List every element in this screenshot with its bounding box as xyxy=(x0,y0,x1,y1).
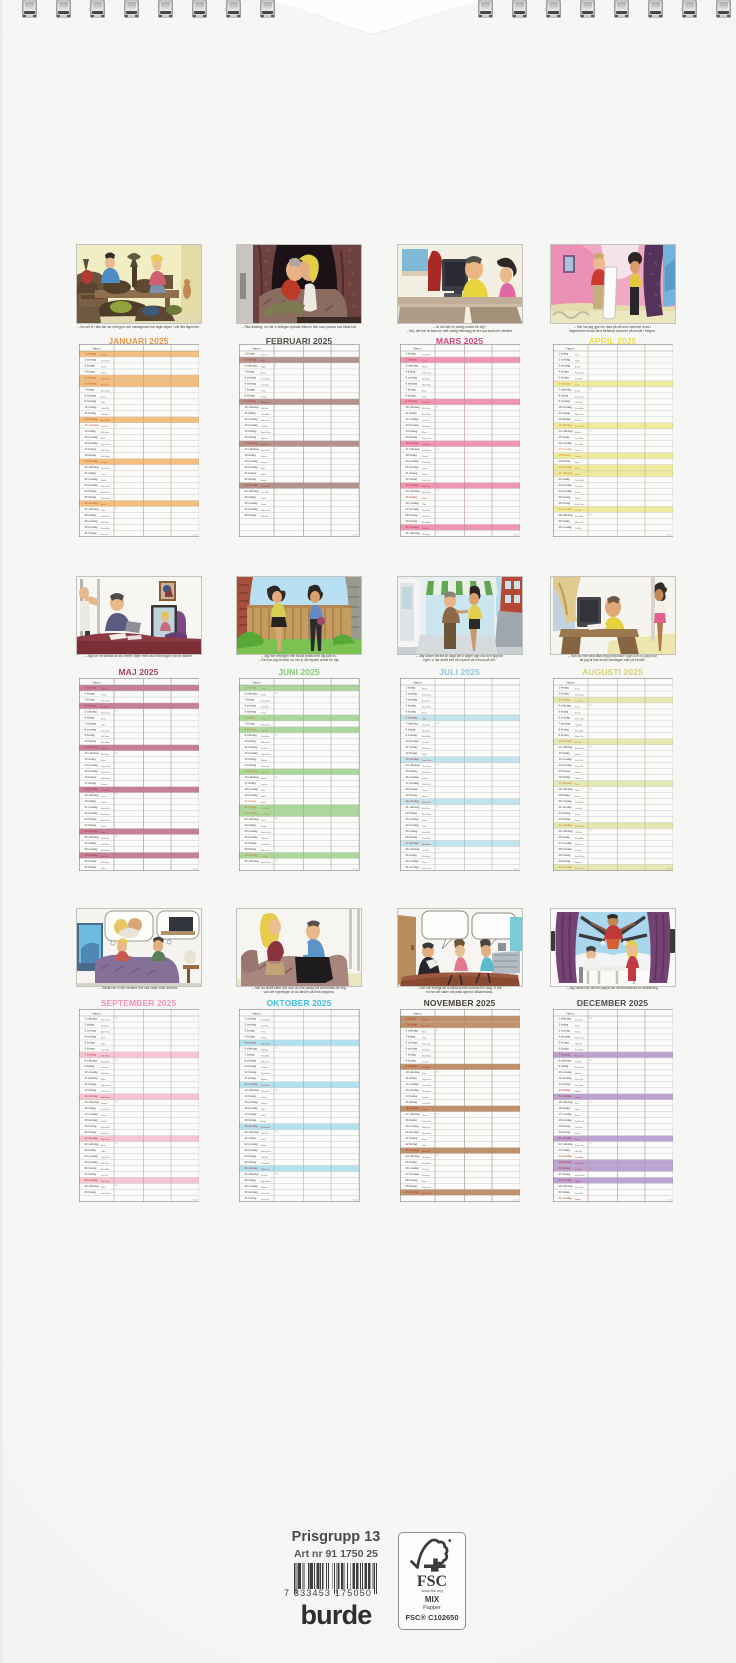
svg-text:27 lördag: 27 lördag xyxy=(558,1171,570,1175)
svg-text:24 måndag: 24 måndag xyxy=(245,489,259,493)
svg-text:4 torsdag: 4 torsdag xyxy=(558,1034,570,1038)
svg-text:14 måndag: 14 måndag xyxy=(405,763,419,767)
svg-text:Svea Rut: Svea Rut xyxy=(575,1084,583,1087)
svg-text:5 söndag: 5 söndag xyxy=(245,1040,257,1044)
svg-text:14 fredag: 14 fredag xyxy=(405,429,417,433)
svg-text:Ulla Nils: Ulla Nils xyxy=(261,837,268,839)
svg-text:Ivar Max: Ivar Max xyxy=(575,700,582,702)
svg-text:Fanny: Fanny xyxy=(261,504,266,506)
svg-text:11 tisdag: 11 tisdag xyxy=(405,1076,417,1080)
svg-text:Edvin Sara: Edvin Sara xyxy=(575,397,585,399)
svg-text:Ivar Max: Ivar Max xyxy=(575,379,582,381)
svg-text:3 måndag: 3 måndag xyxy=(405,364,418,368)
svg-text:1 onsdag: 1 onsdag xyxy=(84,352,96,356)
svg-text:5 onsdag: 5 onsdag xyxy=(405,1040,417,1044)
svg-text:Svea Rut: Svea Rut xyxy=(575,443,583,446)
svg-text:7 söndag: 7 söndag xyxy=(84,1052,96,1056)
svg-text:Rune: Rune xyxy=(422,861,427,863)
svg-text:29 tisdag: 29 tisdag xyxy=(405,852,417,856)
svg-text:Edvin Sara: Edvin Sara xyxy=(261,831,271,833)
svg-text:18 torsdag: 18 torsdag xyxy=(558,1118,572,1122)
svg-text:Ulla Nils: Ulla Nils xyxy=(575,403,582,405)
svg-text:Gunnar: Gunnar xyxy=(575,456,582,458)
svg-text:24 tisdag: 24 tisdag xyxy=(245,822,257,826)
svg-text:Fanny: Fanny xyxy=(261,718,266,720)
svg-text:Otto Svea: Otto Svea xyxy=(101,1090,111,1093)
svg-text:Alva Ebba: Alva Ebba xyxy=(101,1167,111,1170)
svg-text:26 måndag: 26 måndag xyxy=(84,834,98,838)
svg-text:Egon Rune: Egon Rune xyxy=(261,432,271,434)
svg-text:21 söndag: 21 söndag xyxy=(558,1136,571,1140)
svg-text:6 måndag: 6 måndag xyxy=(245,1046,258,1050)
svg-text:21 torsdag: 21 torsdag xyxy=(558,804,572,808)
svg-text:Edvin Sara: Edvin Sara xyxy=(261,724,271,726)
svg-text:Lisa Siri: Lisa Siri xyxy=(422,528,429,530)
svg-text:28 söndag: 28 söndag xyxy=(558,1177,571,1181)
svg-text:Lisa Siri: Lisa Siri xyxy=(101,1067,108,1069)
svg-text:Stina Alva: Stina Alva xyxy=(575,515,585,518)
svg-text:19 onsdag: 19 onsdag xyxy=(245,459,258,463)
svg-text:Gunnar: Gunnar xyxy=(261,1103,268,1105)
svg-text:Ivar Max: Ivar Max xyxy=(575,1127,582,1129)
svg-text:Kasper: Kasper xyxy=(101,462,107,464)
svg-text:burde: burde xyxy=(513,1198,518,1201)
svg-text:2 lördag: 2 lördag xyxy=(558,691,569,695)
svg-text:21 fredag: 21 fredag xyxy=(245,471,257,475)
svg-text:8 måndag: 8 måndag xyxy=(84,1058,97,1062)
svg-text:Svea Rut: Svea Rut xyxy=(575,1191,583,1194)
svg-text:25 fredag: 25 fredag xyxy=(558,495,570,499)
svg-text:Alva Ebba: Alva Ebba xyxy=(101,741,111,744)
svg-text:20 måndag: 20 måndag xyxy=(84,465,98,469)
svg-text:Ivar Max: Ivar Max xyxy=(575,1019,582,1021)
svg-text:Bodil Ivar: Bodil Ivar xyxy=(101,706,109,708)
svg-text:Nils Stina: Nils Stina xyxy=(101,413,110,416)
svg-text:burde: burde xyxy=(513,867,518,870)
svg-text:Anton: Anton xyxy=(575,473,580,476)
svg-text:2 tisdag: 2 tisdag xyxy=(558,1022,568,1026)
svg-text:18 fredag: 18 fredag xyxy=(405,787,417,791)
svg-text:14 onsdag: 14 onsdag xyxy=(84,763,97,767)
svg-text:Max Frida: Max Frida xyxy=(422,813,432,815)
svg-text:27 lördag: 27 lördag xyxy=(84,1171,96,1175)
svg-text:Anton: Anton xyxy=(261,693,266,696)
svg-text:1 måndag: 1 måndag xyxy=(558,1016,571,1020)
svg-text:Namn: Namn xyxy=(92,347,100,351)
svg-text:23 tisdag: 23 tisdag xyxy=(84,1148,96,1152)
svg-text:26 fredag: 26 fredag xyxy=(84,1165,96,1169)
svg-text:16 fredag: 16 fredag xyxy=(84,775,96,779)
svg-text:4 tisdag: 4 tisdag xyxy=(245,370,255,374)
svg-text:25 måndag: 25 måndag xyxy=(558,828,572,832)
svg-text:Vera Otto: Vera Otto xyxy=(575,759,583,762)
svg-text:13 måndag: 13 måndag xyxy=(245,1088,259,1092)
svg-text:28 tisdag: 28 tisdag xyxy=(84,513,96,517)
svg-text:10 måndag: 10 måndag xyxy=(405,406,419,410)
svg-text:29 torsdag: 29 torsdag xyxy=(84,852,98,856)
svg-text:Egon Rune: Egon Rune xyxy=(261,1073,271,1075)
svg-text:16 tisdag: 16 tisdag xyxy=(558,1106,570,1110)
svg-text:Elin Egon: Elin Egon xyxy=(101,754,109,756)
svg-text:Stina Alva: Stina Alva xyxy=(261,1054,271,1057)
svg-text:Majken: Majken xyxy=(575,754,581,756)
svg-text:Anton: Anton xyxy=(261,479,266,482)
svg-text:Majken: Majken xyxy=(261,760,267,762)
svg-text:22 onsdag: 22 onsdag xyxy=(84,477,97,481)
svg-text:26 söndag: 26 söndag xyxy=(245,1165,258,1169)
svg-text:20 torsdag: 20 torsdag xyxy=(405,465,419,469)
svg-text:3 tisdag: 3 tisdag xyxy=(245,697,255,701)
svg-text:Rune: Rune xyxy=(422,1073,427,1075)
svg-text:Erika Paul: Erika Paul xyxy=(101,700,110,702)
svg-text:26 onsdag: 26 onsdag xyxy=(405,1165,418,1169)
svg-text:Hanna: Hanna xyxy=(261,1097,268,1099)
svg-text:Ulla Nils: Ulla Nils xyxy=(575,510,582,512)
svg-text:Stina Alva: Stina Alva xyxy=(575,1048,585,1051)
svg-text:Majken: Majken xyxy=(261,1079,267,1081)
svg-text:28 torsdag: 28 torsdag xyxy=(558,846,572,850)
svg-text:10 måndag: 10 måndag xyxy=(405,1070,419,1074)
svg-text:16 söndag: 16 söndag xyxy=(405,1106,418,1110)
svg-text:Svea Rut: Svea Rut xyxy=(575,765,583,768)
svg-text:Hanna: Hanna xyxy=(261,778,268,780)
svg-text:23 onsdag: 23 onsdag xyxy=(558,483,571,487)
svg-text:20 onsdag: 20 onsdag xyxy=(558,799,571,803)
svg-text:27 tisdag: 27 tisdag xyxy=(84,840,96,844)
svg-text:Alva Ebba: Alva Ebba xyxy=(422,842,432,845)
svg-text:15 lördag: 15 lördag xyxy=(245,435,257,439)
svg-text:Nils Stina: Nils Stina xyxy=(422,729,431,732)
svg-text:Rut Hanna: Rut Hanna xyxy=(101,777,111,780)
svg-text:17 tisdag: 17 tisdag xyxy=(245,781,257,785)
svg-text:Ivar Max: Ivar Max xyxy=(261,813,268,815)
svg-text:Anton: Anton xyxy=(575,366,580,369)
svg-text:Max Frida: Max Frida xyxy=(101,1139,111,1141)
svg-text:Erika Paul: Erika Paul xyxy=(101,807,110,809)
svg-text:Edvin Sara: Edvin Sara xyxy=(261,403,271,405)
svg-text:Felix: Felix xyxy=(575,355,579,357)
svg-text:16 söndag: 16 söndag xyxy=(405,441,418,445)
svg-text:21 måndag: 21 måndag xyxy=(558,471,572,475)
svg-text:3 söndag: 3 söndag xyxy=(558,697,570,701)
svg-text:Rune: Rune xyxy=(422,1180,427,1182)
svg-text:Max Frida: Max Frida xyxy=(101,498,111,500)
svg-text:Signe Vera: Signe Vera xyxy=(101,1192,111,1194)
svg-text:Alva Ebba: Alva Ebba xyxy=(101,527,111,530)
svg-text:7 tisdag: 7 tisdag xyxy=(245,1052,255,1056)
svg-text:21 tisdag: 21 tisdag xyxy=(245,1136,257,1140)
svg-text:Rut Hanna: Rut Hanna xyxy=(422,771,432,774)
svg-text:24 torsdag: 24 torsdag xyxy=(405,822,419,826)
svg-text:26 lördag: 26 lördag xyxy=(405,834,417,838)
svg-text:Siri Elin: Siri Elin xyxy=(575,528,582,530)
svg-text:10 lördag: 10 lördag xyxy=(84,739,96,743)
svg-text:29 tisdag: 29 tisdag xyxy=(558,519,570,523)
svg-text:Ebba Lisa: Ebba Lisa xyxy=(575,522,585,524)
svg-text:2 fredag: 2 fredag xyxy=(84,691,95,695)
svg-text:6 onsdag: 6 onsdag xyxy=(558,715,570,719)
svg-text:Bodil Ivar: Bodil Ivar xyxy=(101,492,109,494)
svg-text:Alva Ebba: Alva Ebba xyxy=(422,413,432,416)
svg-text:Namn: Namn xyxy=(566,1011,574,1015)
svg-text:Lisa Siri: Lisa Siri xyxy=(101,426,108,428)
svg-text:Nils Stina: Nils Stina xyxy=(101,1162,110,1165)
svg-text:Fanny: Fanny xyxy=(575,819,580,821)
svg-text:Ivar Max: Ivar Max xyxy=(575,807,582,809)
svg-text:11 måndag: 11 måndag xyxy=(558,745,572,749)
svg-text:21 fredag: 21 fredag xyxy=(405,471,417,475)
svg-text:5 söndag: 5 söndag xyxy=(84,376,96,380)
svg-text:22 söndag: 22 söndag xyxy=(245,810,258,814)
svg-text:Felix: Felix xyxy=(575,462,579,464)
svg-text:11 söndag: 11 söndag xyxy=(84,745,97,749)
svg-text:Hanna: Hanna xyxy=(575,1198,582,1200)
svg-text:Paul Bodil: Paul Bodil xyxy=(575,373,584,375)
svg-text:Elin Egon: Elin Egon xyxy=(422,1174,430,1176)
svg-text:Siri Elin: Siri Elin xyxy=(261,855,268,857)
svg-text:Erika Paul: Erika Paul xyxy=(422,480,431,482)
svg-text:25 onsdag: 25 onsdag xyxy=(245,828,258,832)
svg-text:Vera Otto: Vera Otto xyxy=(261,443,269,446)
svg-text:30 onsdag: 30 onsdag xyxy=(558,525,571,529)
svg-text:14 söndag: 14 söndag xyxy=(558,1094,571,1098)
svg-text:8 tisdag: 8 tisdag xyxy=(405,727,415,731)
svg-text:Max Frida: Max Frida xyxy=(101,819,111,821)
svg-text:Fanny: Fanny xyxy=(575,1031,580,1033)
svg-text:12 tisdag: 12 tisdag xyxy=(558,751,570,755)
svg-text:Bodil Ivar: Bodil Ivar xyxy=(101,813,109,815)
svg-text:28 söndag: 28 söndag xyxy=(84,1177,97,1181)
svg-text:23 fredag: 23 fredag xyxy=(84,816,96,820)
svg-text:13 onsdag: 13 onsdag xyxy=(558,757,571,761)
svg-text:16 måndag: 16 måndag xyxy=(245,775,259,779)
svg-text:15 tisdag: 15 tisdag xyxy=(558,435,570,439)
svg-text:Majken: Majken xyxy=(575,1073,581,1075)
svg-text:Henrik: Henrik xyxy=(101,802,107,804)
svg-text:Vera Otto: Vera Otto xyxy=(575,866,583,869)
svg-text:Ulla Nils: Ulla Nils xyxy=(575,724,582,726)
svg-text:Lisa Siri: Lisa Siri xyxy=(101,855,108,857)
svg-text:21 fredag: 21 fredag xyxy=(405,1136,417,1140)
svg-text:Ivar Max: Ivar Max xyxy=(575,486,582,488)
svg-text:12 onsdag: 12 onsdag xyxy=(245,417,258,421)
svg-text:26 lördag: 26 lördag xyxy=(558,501,570,505)
svg-text:Signe Vera: Signe Vera xyxy=(101,1085,111,1087)
svg-text:Alva Ebba: Alva Ebba xyxy=(422,735,432,738)
svg-text:1 lördag: 1 lördag xyxy=(245,352,256,356)
svg-text:19 torsdag: 19 torsdag xyxy=(245,793,259,797)
svg-text:18 tisdag: 18 tisdag xyxy=(405,453,417,457)
svg-text:30 söndag: 30 söndag xyxy=(405,525,418,529)
svg-text:Henrik: Henrik xyxy=(422,1115,428,1117)
svg-text:30 torsdag: 30 torsdag xyxy=(84,525,98,529)
svg-text:Paul Bodil: Paul Bodil xyxy=(261,807,270,809)
svg-text:Edvin Sara: Edvin Sara xyxy=(261,510,271,512)
svg-text:13 söndag: 13 söndag xyxy=(558,423,571,427)
svg-text:Max Frida: Max Frida xyxy=(422,1025,432,1027)
svg-text:16 torsdag: 16 torsdag xyxy=(84,441,98,445)
svg-text:9 onsdag: 9 onsdag xyxy=(558,400,570,404)
svg-text:14 lördag: 14 lördag xyxy=(245,763,257,767)
svg-text:Vera Otto: Vera Otto xyxy=(575,437,583,440)
svg-text:Nils Stina: Nils Stina xyxy=(101,735,110,738)
svg-text:Stina Alva: Stina Alva xyxy=(261,842,271,845)
svg-text:Felix: Felix xyxy=(261,468,265,470)
svg-text:25 torsdag: 25 torsdag xyxy=(84,1160,98,1164)
svg-text:Ebba Lisa: Ebba Lisa xyxy=(261,1061,271,1063)
svg-text:Knut Felix: Knut Felix xyxy=(101,360,110,363)
svg-text:17 måndag: 17 måndag xyxy=(245,447,259,451)
svg-text:2 torsdag: 2 torsdag xyxy=(245,1022,257,1026)
svg-text:31 måndag: 31 måndag xyxy=(405,531,419,535)
svg-text:Otto Svea: Otto Svea xyxy=(101,771,111,774)
svg-text:7 måndag: 7 måndag xyxy=(558,388,571,392)
svg-text:14 måndag: 14 måndag xyxy=(558,429,572,433)
svg-text:Ulla Nils: Ulla Nils xyxy=(261,409,268,411)
svg-text:24 måndag: 24 måndag xyxy=(405,489,419,493)
svg-text:29 fredag: 29 fredag xyxy=(558,852,570,856)
svg-text:15 fredag: 15 fredag xyxy=(558,769,570,773)
svg-text:Sara Ulla: Sara Ulla xyxy=(101,1049,110,1051)
svg-text:10 söndag: 10 söndag xyxy=(558,739,571,743)
svg-text:19 onsdag: 19 onsdag xyxy=(405,1124,418,1128)
svg-text:3 måndag: 3 måndag xyxy=(245,364,258,368)
svg-text:Gunnar: Gunnar xyxy=(261,355,268,357)
svg-text:22 onsdag: 22 onsdag xyxy=(245,1142,258,1146)
svg-text:Paul Bodil: Paul Bodil xyxy=(575,1121,584,1123)
svg-text:6 fredag: 6 fredag xyxy=(245,715,256,719)
svg-text:Alva Ebba: Alva Ebba xyxy=(101,848,111,851)
svg-text:2 söndag: 2 söndag xyxy=(405,1022,417,1026)
svg-text:Vera Otto: Vera Otto xyxy=(575,1078,583,1081)
svg-text:12 torsdag: 12 torsdag xyxy=(245,751,259,755)
svg-text:Ebba Lisa: Ebba Lisa xyxy=(261,742,271,744)
svg-text:Felix: Felix xyxy=(261,1109,265,1111)
svg-text:24 onsdag: 24 onsdag xyxy=(84,1154,97,1158)
svg-text:30 tisdag: 30 tisdag xyxy=(558,1189,570,1193)
svg-text:5 tisdag: 5 tisdag xyxy=(558,709,568,713)
svg-text:burde: burde xyxy=(192,534,197,537)
svg-text:Majken: Majken xyxy=(261,1186,267,1188)
svg-text:6 tisdag: 6 tisdag xyxy=(84,715,94,719)
svg-text:Henrik: Henrik xyxy=(101,1121,107,1123)
svg-text:Alva Ebba: Alva Ebba xyxy=(101,419,111,422)
svg-text:Rune: Rune xyxy=(101,1079,106,1081)
svg-text:17 torsdag: 17 torsdag xyxy=(558,447,572,451)
svg-text:Egon Rune: Egon Rune xyxy=(575,1174,585,1176)
svg-text:22 lördag: 22 lördag xyxy=(405,477,417,481)
svg-text:Bodil Ivar: Bodil Ivar xyxy=(422,700,430,702)
svg-text:15 lördag: 15 lördag xyxy=(405,435,417,439)
svg-text:Kasper: Kasper xyxy=(422,456,428,458)
svg-text:Nils Stina: Nils Stina xyxy=(422,1156,431,1159)
svg-text:Vera Otto: Vera Otto xyxy=(261,1084,269,1087)
svg-text:Alva Ebba: Alva Ebba xyxy=(422,1162,432,1165)
svg-text:2 måndag: 2 måndag xyxy=(245,691,258,695)
svg-text:8 lördag: 8 lördag xyxy=(245,394,256,398)
svg-text:12 söndag: 12 söndag xyxy=(84,417,97,421)
svg-text:Egon Rune: Egon Rune xyxy=(575,426,585,428)
svg-text:31 söndag: 31 söndag xyxy=(558,864,571,868)
svg-text:4 måndag: 4 måndag xyxy=(558,703,571,707)
svg-text:Stina Alva: Stina Alva xyxy=(575,729,585,732)
svg-text:burde: burde xyxy=(666,1198,671,1201)
svg-text:Ivar Max: Ivar Max xyxy=(261,492,268,494)
svg-text:28 fredag: 28 fredag xyxy=(405,1177,417,1181)
svg-text:Vera Otto: Vera Otto xyxy=(261,765,269,768)
svg-text:2 söndag: 2 söndag xyxy=(405,358,417,362)
svg-text:Ebba Lisa: Ebba Lisa xyxy=(261,420,271,422)
svg-text:Sara Ulla: Sara Ulla xyxy=(422,1151,431,1153)
svg-text:18 söndag: 18 söndag xyxy=(84,787,97,791)
svg-text:29 lördag: 29 lördag xyxy=(405,519,417,523)
svg-text:Stina Alva: Stina Alva xyxy=(261,735,271,738)
svg-text:11 onsdag: 11 onsdag xyxy=(245,745,258,749)
svg-text:27 torsdag: 27 torsdag xyxy=(405,507,419,511)
svg-text:Max Frida: Max Frida xyxy=(422,1133,432,1135)
svg-text:30 fredag: 30 fredag xyxy=(84,858,96,862)
svg-text:Signe Vera: Signe Vera xyxy=(422,867,432,869)
svg-text:Edvin Sara: Edvin Sara xyxy=(575,825,585,827)
svg-text:Edvin Sara: Edvin Sara xyxy=(575,1037,585,1039)
svg-text:28 måndag: 28 måndag xyxy=(558,513,572,517)
svg-text:10 torsdag: 10 torsdag xyxy=(558,406,572,410)
svg-text:3 fredag: 3 fredag xyxy=(84,364,95,368)
svg-text:Nils Stina: Nils Stina xyxy=(101,1054,110,1057)
svg-text:Ivar Max: Ivar Max xyxy=(261,1133,268,1135)
svg-text:17 måndag: 17 måndag xyxy=(405,447,419,451)
svg-text:burde: burde xyxy=(666,867,671,870)
svg-text:25 torsdag: 25 torsdag xyxy=(558,1160,572,1164)
svg-text:Otto Svea: Otto Svea xyxy=(101,449,111,452)
svg-text:Lisa Siri: Lisa Siri xyxy=(422,849,429,851)
svg-text:27 torsdag: 27 torsdag xyxy=(405,1171,419,1175)
svg-text:7 lördag: 7 lördag xyxy=(245,721,256,725)
svg-text:Felix: Felix xyxy=(261,790,265,792)
svg-text:Edvin Sara: Edvin Sara xyxy=(575,718,585,720)
svg-text:Paul Bodil: Paul Bodil xyxy=(575,802,584,804)
svg-text:24 lördag: 24 lördag xyxy=(84,822,96,826)
svg-text:Siri Elin: Siri Elin xyxy=(261,748,268,750)
svg-text:10 torsdag: 10 torsdag xyxy=(405,739,419,743)
svg-text:13 måndag: 13 måndag xyxy=(84,423,98,427)
svg-text:11 tisdag: 11 tisdag xyxy=(245,411,257,415)
svg-text:Lisa Siri: Lisa Siri xyxy=(422,420,429,422)
svg-text:17 måndag: 17 måndag xyxy=(405,1112,419,1116)
svg-text:Rune: Rune xyxy=(422,754,427,756)
svg-text:Edvin Sara: Edvin Sara xyxy=(575,504,585,506)
svg-text:Paul Bodil: Paul Bodil xyxy=(261,486,270,488)
svg-text:25 lördag: 25 lördag xyxy=(245,1160,257,1164)
svg-text:Egon Rune: Egon Rune xyxy=(575,855,585,857)
svg-text:Kasper: Kasper xyxy=(422,778,428,780)
svg-text:17 fredag: 17 fredag xyxy=(84,447,96,451)
svg-text:Egon Rune: Egon Rune xyxy=(261,1180,271,1182)
svg-text:Namn: Namn xyxy=(253,1011,261,1015)
svg-text:Max Frida: Max Frida xyxy=(101,712,111,714)
svg-text:7 fredag: 7 fredag xyxy=(245,388,256,392)
svg-text:Rut Hanna: Rut Hanna xyxy=(101,1096,111,1099)
svg-text:6 lördag: 6 lördag xyxy=(558,1046,569,1050)
svg-text:Ulla Nils: Ulla Nils xyxy=(261,1049,268,1051)
svg-text:7 måndag: 7 måndag xyxy=(405,721,418,725)
svg-text:Bodil Ivar: Bodil Ivar xyxy=(101,385,109,387)
svg-text:Lisa Siri: Lisa Siri xyxy=(101,748,108,750)
svg-text:Rune: Rune xyxy=(101,760,106,762)
svg-text:Paul Bodil: Paul Bodil xyxy=(575,480,584,482)
svg-text:Max Frida: Max Frida xyxy=(422,385,432,387)
svg-text:28 fredag: 28 fredag xyxy=(405,513,417,517)
